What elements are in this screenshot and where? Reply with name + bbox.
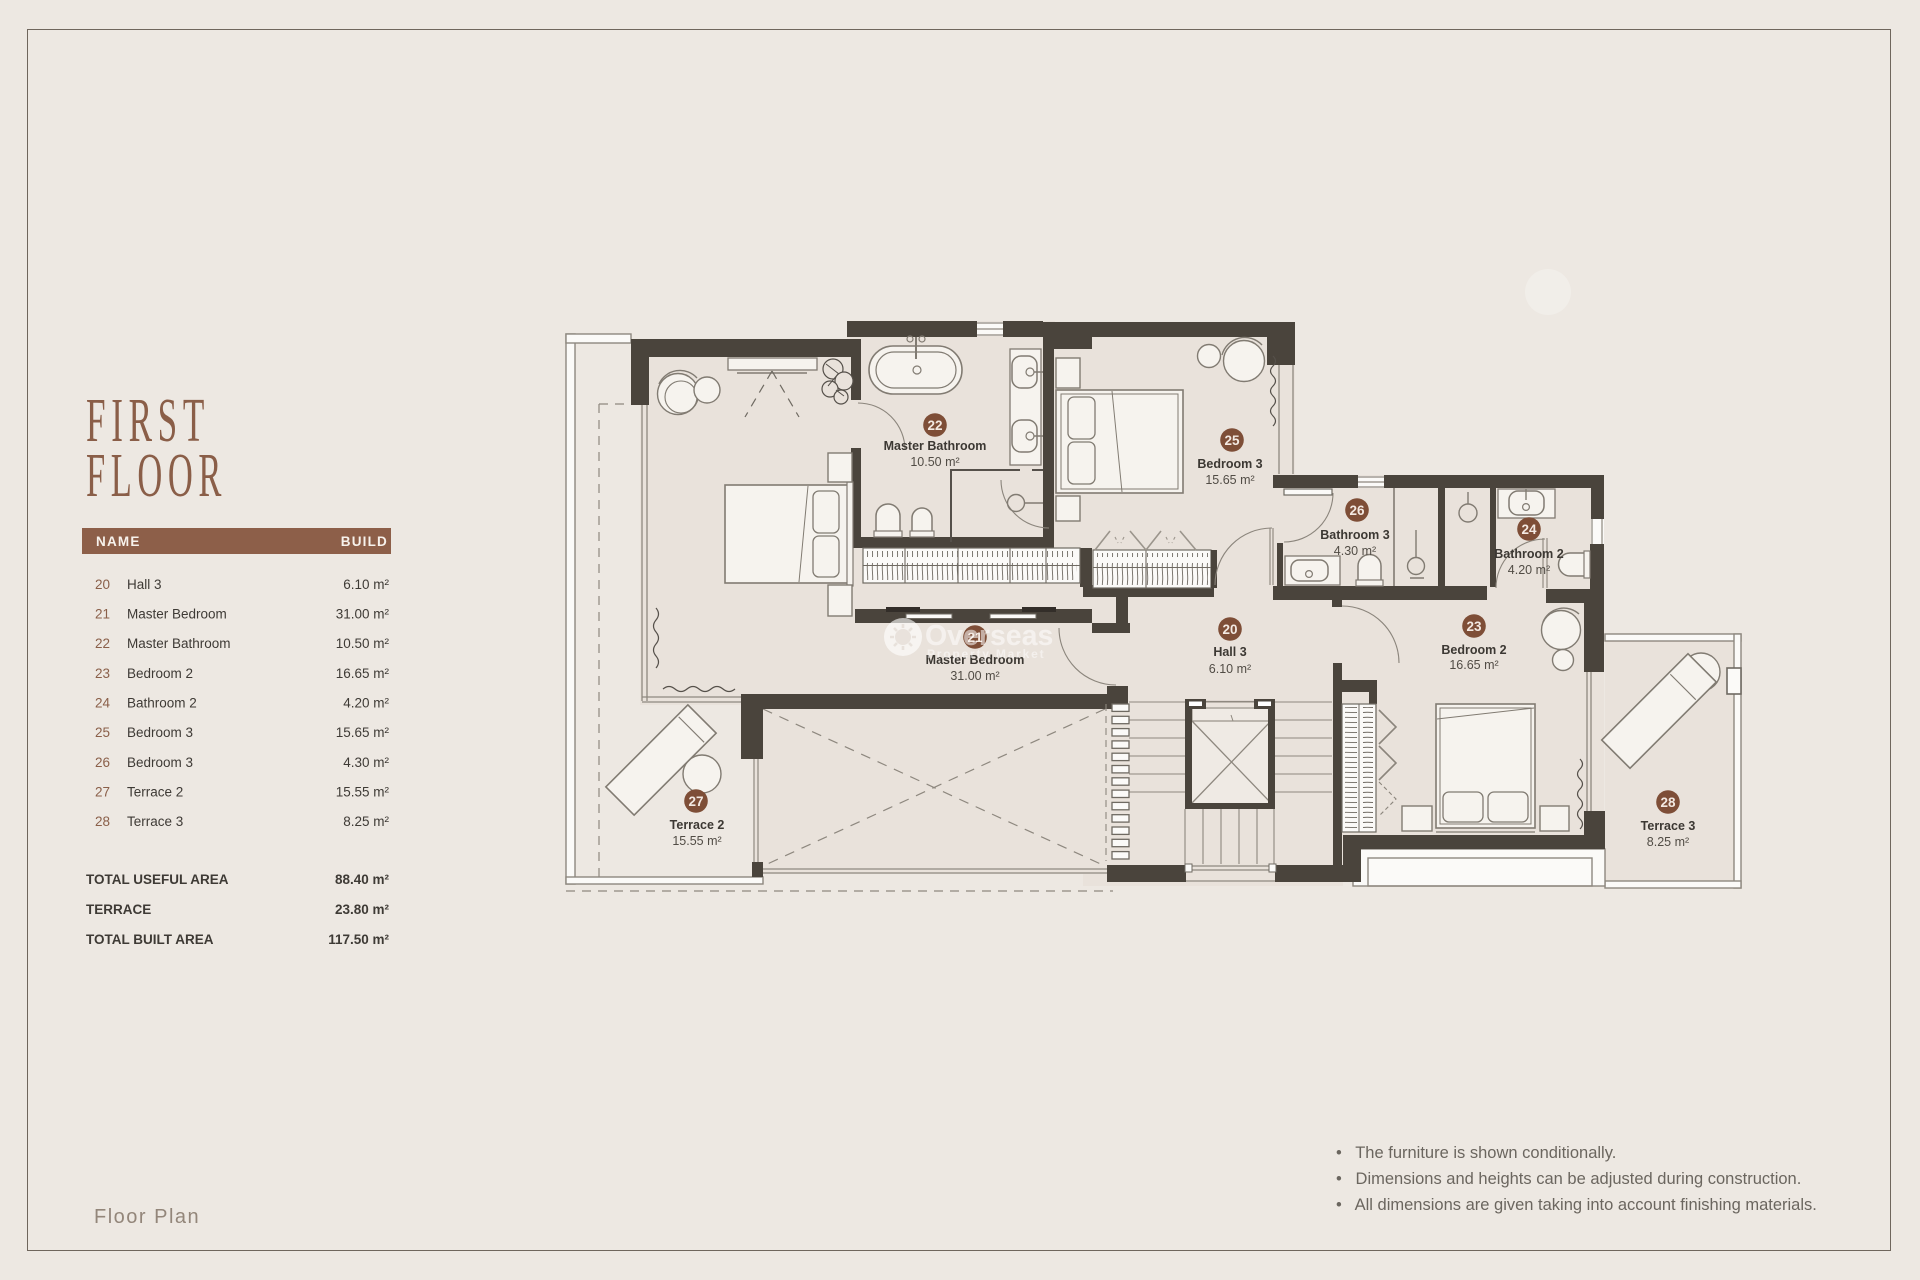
svg-text:6.10 m²: 6.10 m²	[1209, 662, 1251, 676]
svg-text:23: 23	[1466, 619, 1482, 634]
svg-text:15.65 m²: 15.65 m²	[1205, 473, 1254, 487]
svg-text:4.20 m²: 4.20 m²	[1508, 563, 1550, 577]
svg-text:26: 26	[1349, 503, 1365, 518]
svg-text:24: 24	[1521, 522, 1537, 537]
svg-text:4.30 m²: 4.30 m²	[1334, 544, 1376, 558]
svg-text:Bedroom 3: Bedroom 3	[1197, 457, 1262, 471]
svg-text:Bedroom 2: Bedroom 2	[1441, 643, 1506, 657]
svg-text:Master Bathroom: Master Bathroom	[884, 439, 987, 453]
svg-text:Hall 3: Hall 3	[1213, 645, 1246, 659]
svg-text:16.65 m²: 16.65 m²	[1449, 658, 1498, 672]
svg-text:Bathroom 2: Bathroom 2	[1494, 547, 1564, 561]
svg-text:8.25 m²: 8.25 m²	[1647, 835, 1689, 849]
svg-text:Bathroom 3: Bathroom 3	[1320, 528, 1390, 542]
svg-text:Property Market: Property Market	[927, 647, 1045, 661]
svg-text:15.55 m²: 15.55 m²	[672, 834, 721, 848]
svg-text:10.50 m²: 10.50 m²	[910, 455, 959, 469]
svg-text:20: 20	[1222, 622, 1237, 637]
svg-text:27: 27	[688, 794, 703, 809]
svg-text:31.00 m²: 31.00 m²	[950, 669, 999, 683]
svg-text:22: 22	[927, 418, 942, 433]
svg-text:25: 25	[1224, 433, 1240, 448]
svg-text:Terrace 2: Terrace 2	[670, 818, 725, 832]
svg-text:28: 28	[1660, 795, 1676, 810]
svg-text:Terrace 3: Terrace 3	[1641, 819, 1696, 833]
